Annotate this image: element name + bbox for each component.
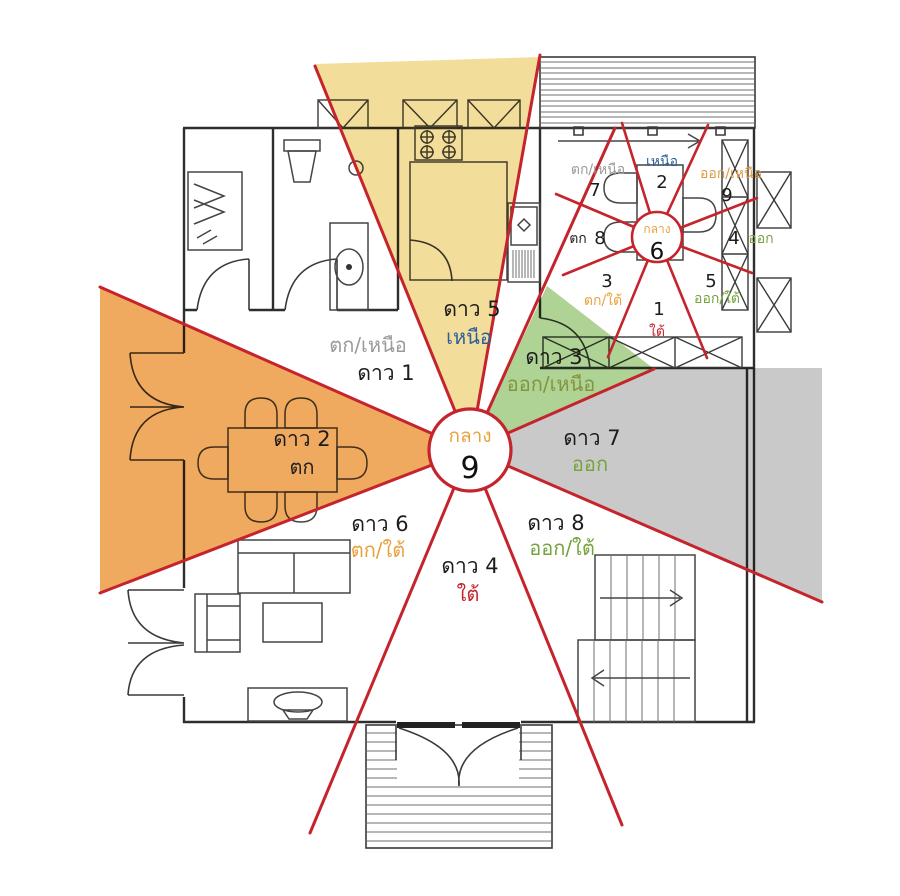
stairs-up-arrow (600, 590, 682, 606)
mini-s-direction: ใต้ (649, 323, 665, 340)
living-room (195, 540, 350, 721)
bath-sink-top (284, 140, 320, 151)
mini-w-number: 8 (594, 228, 605, 249)
right-wall-units (757, 172, 791, 332)
sector-6-direction: ตก/ใต้ (351, 538, 406, 562)
mini-s-number: 1 (653, 299, 664, 320)
tv-console (248, 688, 347, 721)
bedroom-door (197, 259, 249, 310)
mini-sw-number: 3 (601, 271, 612, 292)
mini-ne-direction: ออก/เหนือ (700, 166, 762, 182)
mini-e-number: 4 (728, 228, 739, 249)
sector-3-direction: ออก/เหนือ (507, 372, 596, 396)
upper-deck-stripes (541, 62, 754, 123)
sector-6-star: ดาว 6 (351, 512, 408, 536)
main-center-label: กลาง (448, 425, 491, 447)
mini-e-direction: ออก (748, 231, 773, 247)
mini-ne-number: 9 (721, 185, 732, 206)
main-center-number: 9 (460, 451, 479, 486)
sector-5-star: ดาว 5 (443, 297, 500, 321)
mini-w-direction: ตก (569, 231, 587, 247)
entry-porch (366, 722, 552, 848)
stairs (578, 555, 695, 722)
sector-2-star: ดาว 2 (273, 427, 330, 451)
armchair (195, 594, 240, 652)
mini-nw-number: 7 (589, 180, 600, 201)
coffee-table (263, 603, 322, 642)
floor-plan-diagram: กลาง 9 ตก/เหนือ ดาว 1 ดาว 5 เหนือ ดาว 3 … (0, 0, 900, 896)
french-doors-lower (128, 590, 184, 695)
sector-5-direction: เหนือ (446, 325, 492, 349)
sector-1-direction: ตก/เหนือ (329, 333, 407, 357)
sector-7-star: ดาว 7 (563, 426, 620, 450)
mini-center-number: 6 (650, 239, 665, 265)
sector-8-star: ดาว 8 (527, 511, 584, 535)
mini-se-number: 5 (705, 271, 716, 292)
sector-2-direction: ตก (289, 455, 314, 479)
mini-n-number: 2 (656, 172, 667, 193)
sector-4-direction: ใต้ (457, 582, 480, 606)
mini-center-label: กลาง (643, 222, 670, 236)
bedroom-bed (188, 172, 242, 250)
mini-n-direction: เหนือ (646, 154, 678, 170)
mini-se-direction: ออก/ใต้ (694, 290, 740, 307)
sector-8-direction: ออก/ใต้ (529, 536, 595, 560)
mini-nw-direction: ตก/เหนือ (571, 162, 625, 178)
sector-3-star: ดาว 3 (525, 345, 582, 369)
bath-sink (288, 151, 316, 182)
sector-1-star: ดาว 1 (357, 361, 414, 385)
bathroom-door (285, 259, 337, 310)
sector-7-direction: ออก (572, 452, 608, 476)
mini-sw-direction: ตก/ใต้ (584, 292, 622, 309)
stairs-down-arrow (592, 670, 690, 686)
sink-diamond (518, 219, 530, 231)
floor-plan-svg: กลาง 9 ตก/เหนือ ดาว 1 ดาว 5 เหนือ ดาว 3 … (0, 0, 900, 896)
tv (274, 692, 322, 712)
sector-4-star: ดาว 4 (441, 554, 498, 578)
